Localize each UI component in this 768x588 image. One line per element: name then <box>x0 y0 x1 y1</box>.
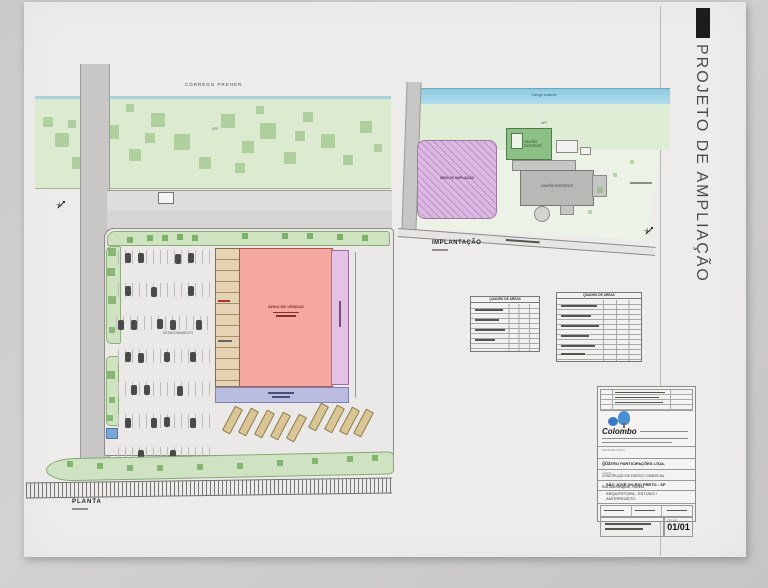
table-text-smear <box>475 329 505 331</box>
field-smear <box>635 510 655 511</box>
impl-warehouse-annex <box>592 175 607 197</box>
sales-hall-label: ÁREA DE VENDAS <box>240 305 332 310</box>
strip-text-smear <box>339 301 341 327</box>
landscape-strip-top <box>107 231 390 246</box>
parked-cars <box>0 0 6 10</box>
dock-text-smear <box>272 396 290 398</box>
logo-info-smear <box>640 431 688 432</box>
table-text-smear <box>561 325 599 327</box>
hall-text-smear <box>276 315 296 317</box>
impl-north-arrow-icon <box>640 224 656 240</box>
impl-green-building-label: GALPÃO EXISTENTE <box>524 141 551 149</box>
planta-label: PLANTA <box>72 499 102 506</box>
accessible-parking-marker <box>106 428 118 439</box>
parking-row <box>118 414 214 428</box>
sheet-number-cell: FOLHA: 01/01 <box>664 517 693 537</box>
folha-value: 01/01 <box>665 522 692 532</box>
field-smear <box>604 510 624 511</box>
city-value: SÃO JOSÉ DO RIO PRETO - SP <box>606 483 666 488</box>
impl-road-label-smear <box>506 239 540 243</box>
sheet-title: PROJETO DE AMPLIAÇÃO <box>692 44 710 364</box>
parking-row <box>118 250 214 264</box>
impl-green-building-notch <box>511 133 523 149</box>
parking-row <box>118 283 214 297</box>
divider <box>598 458 695 459</box>
divider <box>598 480 695 481</box>
signature-cell <box>600 517 664 537</box>
building-dock-strip <box>215 387 349 403</box>
building-sales-hall: ÁREA DE VENDAS <box>239 248 333 387</box>
room-text-smear <box>218 300 230 302</box>
impl-expansion-label: ÁREA DE AMPLIAÇÃO <box>418 141 496 181</box>
scanned-drawing-photo: { "sheet": { "title": "PROJETO DE AMPLIA… <box>0 0 768 588</box>
table-text-smear <box>561 345 595 347</box>
area-table-left-rows <box>471 304 539 351</box>
impl-green-building: GALPÃO EXISTENTE <box>506 128 552 160</box>
entry-apron <box>107 211 392 229</box>
parking-row <box>118 349 214 363</box>
impl-note-smear <box>630 182 652 184</box>
signature-smear <box>605 528 643 530</box>
implantacao-scale-smear <box>432 249 448 251</box>
gatehouse <box>158 192 174 204</box>
owner-label: PROPRIETÁRIO: <box>602 448 692 452</box>
rev-smear <box>615 392 665 393</box>
parking-row <box>116 316 214 330</box>
table-text-smear <box>475 339 495 341</box>
street-horizontal <box>107 190 392 212</box>
table-text-smear <box>475 319 499 321</box>
fields-grid <box>600 505 693 517</box>
revision-table <box>600 389 693 411</box>
address-smear <box>602 442 672 443</box>
table-text-smear <box>561 305 597 307</box>
area-table-right-rows <box>557 300 641 361</box>
impl-app-label: APP <box>418 104 670 126</box>
parking-row <box>118 382 214 396</box>
area-table-left-title: QUADRO DE ÁREAS <box>471 297 539 303</box>
title-black-bar <box>696 8 710 38</box>
impl-existing-warehouse: GALPÃO EXISTENTE <box>520 170 594 206</box>
title-block: Colombo PROPRIETÁRIO: QUATRO PARTICIPAÇÕ… <box>597 386 696 522</box>
area-table-right-title: QUADRO DE ÁREAS <box>557 293 641 299</box>
field-smear <box>667 510 687 511</box>
impl-small-structure <box>560 205 574 215</box>
north-arrow-icon <box>52 198 68 214</box>
hall-text-smear <box>273 312 299 314</box>
implantacao-label: IMPLANTAÇÃO <box>432 240 481 247</box>
signature-smear <box>605 523 651 525</box>
local-label: LOCAL: <box>602 471 692 475</box>
planta-scale-smear <box>72 508 88 510</box>
building-rooms-strip <box>215 248 241 387</box>
logo-wordmark: Colombo <box>602 427 637 436</box>
divider <box>598 469 695 470</box>
dock-text-smear <box>268 392 294 394</box>
table-text-smear <box>561 315 591 317</box>
app-label: APP <box>212 128 218 132</box>
rev-smear <box>615 397 659 398</box>
area-table-right: QUADRO DE ÁREAS <box>556 292 642 362</box>
parking-label: ESTACIONAMENTO <box>148 332 208 336</box>
project-row: ARQUITETURA - ESTUDO / ANTEPROJETO <box>606 492 692 502</box>
impl-tank <box>534 206 550 222</box>
project-value-2: ANTEPROJETO <box>606 497 692 502</box>
impl-outbuilding <box>556 140 578 153</box>
impl-expansion-area: ÁREA DE AMPLIAÇÃO <box>417 140 497 219</box>
address-smear <box>602 438 688 439</box>
logo-tree-icon-2 <box>608 417 618 426</box>
dimension-line <box>355 252 356 398</box>
corrego-label: CÓRREGO PREHER <box>185 82 242 87</box>
table-text-smear <box>475 309 503 311</box>
divider <box>598 503 695 504</box>
impl-warehouse-label: GALPÃO EXISTENTE <box>521 171 593 189</box>
area-table-left: QUADRO DE ÁREAS <box>470 296 540 352</box>
impl-stream-label: Córrego existente <box>418 89 670 98</box>
impl-outbuilding <box>580 147 591 155</box>
divider <box>598 446 695 447</box>
table-text-smear <box>561 353 585 355</box>
room-text-smear <box>218 340 232 342</box>
rev-smear <box>615 402 663 403</box>
impl-stream: Córrego existente <box>418 88 670 105</box>
table-text-smear <box>561 335 589 337</box>
building-right-strip <box>331 250 349 385</box>
work-label: OBRA: <box>602 460 692 464</box>
